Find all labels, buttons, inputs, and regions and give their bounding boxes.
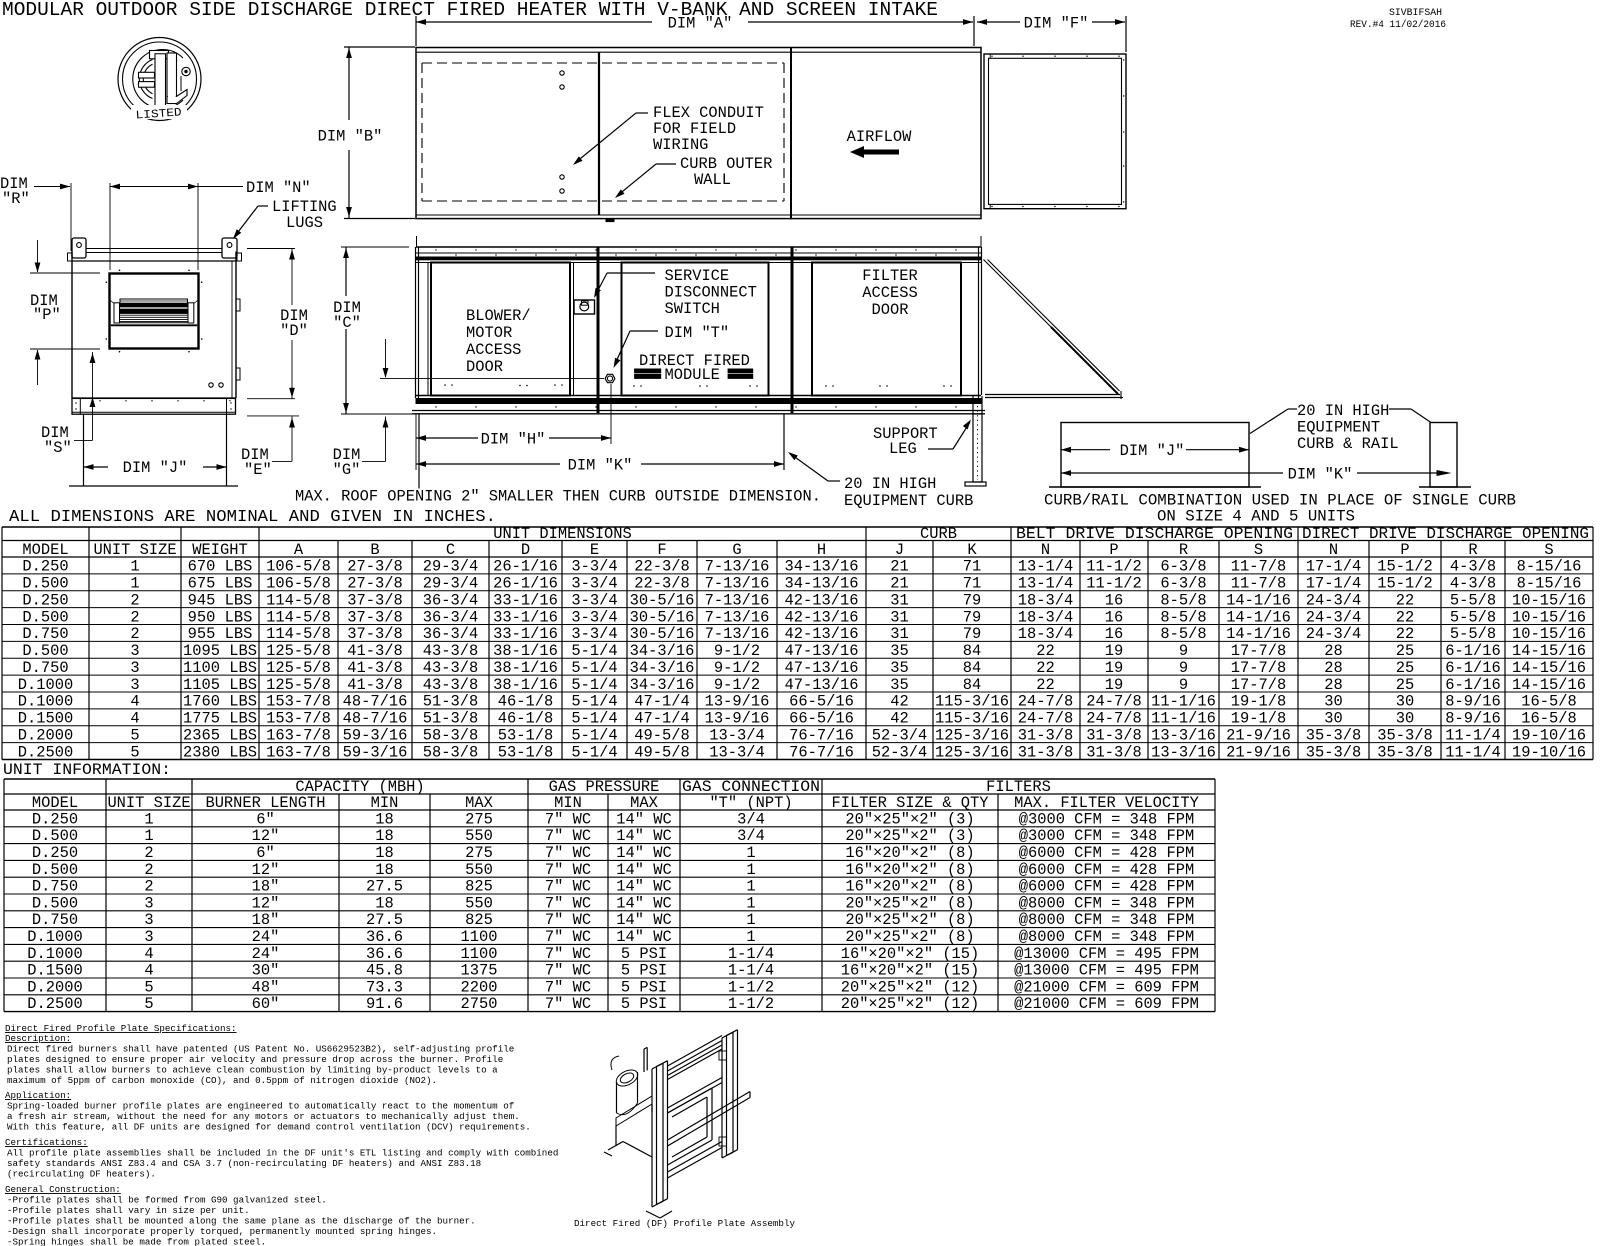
svg-text:48": 48" <box>252 978 280 996</box>
svg-text:D.500: D.500 <box>22 608 68 626</box>
svg-text:@6000 CFM = 428 FPM: @6000 CFM = 428 FPM <box>1019 878 1194 896</box>
svg-text:13-9/16: 13-9/16 <box>705 710 770 728</box>
svg-text:114-5/8: 114-5/8 <box>266 591 331 609</box>
svg-text:D.2000: D.2000 <box>27 978 82 996</box>
svg-text:WALL: WALL <box>694 171 731 189</box>
svg-text:34-3/16: 34-3/16 <box>630 659 695 677</box>
svg-text:H: H <box>817 541 826 559</box>
svg-text:"E": "E" <box>244 461 272 479</box>
svg-text:16: 16 <box>1105 625 1123 643</box>
svg-text:945 LBS: 945 LBS <box>188 591 253 609</box>
svg-text:MAX. FILTER VELOCITY: MAX. FILTER VELOCITY <box>1014 794 1199 812</box>
svg-text:1: 1 <box>130 575 139 593</box>
svg-text:1100 LBS: 1100 LBS <box>183 659 257 677</box>
svg-text:plates shall allow burners to: plates shall allow burners to achieve cl… <box>7 1065 498 1076</box>
svg-text:950 LBS: 950 LBS <box>188 608 253 626</box>
svg-text:WEIGHT: WEIGHT <box>192 541 247 559</box>
svg-text:BURNER LENGTH: BURNER LENGTH <box>205 794 325 812</box>
svg-text:9: 9 <box>1179 642 1188 660</box>
svg-text:7-13/16: 7-13/16 <box>705 591 770 609</box>
svg-text:42-13/16: 42-13/16 <box>785 608 859 626</box>
svg-text:35: 35 <box>890 659 908 677</box>
svg-text:D.250: D.250 <box>32 844 78 862</box>
svg-text:D.500: D.500 <box>32 894 78 912</box>
svg-text:4: 4 <box>130 693 139 711</box>
svg-text:22: 22 <box>1396 608 1414 626</box>
svg-text:12": 12" <box>252 861 280 879</box>
svg-text:20 IN HIGH: 20 IN HIGH <box>1297 402 1389 420</box>
svg-text:60": 60" <box>252 995 280 1013</box>
svg-text:D.250: D.250 <box>22 558 68 576</box>
svg-text:9-1/2: 9-1/2 <box>714 676 760 694</box>
svg-text:DIM "T": DIM "T" <box>665 324 730 342</box>
svg-text:19: 19 <box>1105 642 1123 660</box>
svg-text:37-3/8: 37-3/8 <box>347 608 402 626</box>
svg-text:59-3/16: 59-3/16 <box>343 726 408 744</box>
svg-text:31: 31 <box>890 608 908 626</box>
svg-text:49-5/8: 49-5/8 <box>634 743 689 761</box>
svg-text:13-3/16: 13-3/16 <box>1151 743 1216 761</box>
svg-text:ALL DIMENSIONS ARE NOMINAL AND: ALL DIMENSIONS ARE NOMINAL AND GIVEN IN … <box>9 508 496 527</box>
svg-text:S: S <box>1254 541 1263 559</box>
svg-text:13-3/4: 13-3/4 <box>709 743 764 761</box>
svg-text:24-3/4: 24-3/4 <box>1306 625 1361 643</box>
svg-text:DIM "K": DIM "K" <box>1288 466 1353 484</box>
svg-text:20"×25"×2" (3): 20"×25"×2" (3) <box>845 810 974 828</box>
svg-text:UNIT SIZE: UNIT SIZE <box>107 794 190 812</box>
svg-text:22: 22 <box>1396 591 1414 609</box>
svg-text:22: 22 <box>1036 659 1054 677</box>
svg-text:46-1/8: 46-1/8 <box>498 710 553 728</box>
svg-text:18": 18" <box>252 911 280 929</box>
svg-text:21-9/16: 21-9/16 <box>1226 743 1291 761</box>
svg-text:20"×25"×2" (8): 20"×25"×2" (8) <box>845 911 974 929</box>
svg-text:6-1/16: 6-1/16 <box>1445 642 1500 660</box>
svg-text:DIM "B": DIM "B" <box>318 128 383 146</box>
svg-text:4: 4 <box>130 710 139 728</box>
svg-text:20 IN HIGH: 20 IN HIGH <box>844 475 936 493</box>
svg-text:18: 18 <box>375 894 393 912</box>
svg-text:12": 12" <box>252 894 280 912</box>
svg-text:SIVBIFSAH: SIVBIFSAH <box>1389 7 1442 19</box>
svg-text:5-1/4: 5-1/4 <box>571 642 617 660</box>
svg-text:1105 LBS: 1105 LBS <box>183 676 257 694</box>
svg-text:41-3/8: 41-3/8 <box>347 676 402 694</box>
svg-text:@6000 CFM = 428 FPM: @6000 CFM = 428 FPM <box>1019 844 1194 862</box>
svg-text:27-3/8: 27-3/8 <box>347 558 402 576</box>
svg-text:D.500: D.500 <box>22 642 68 660</box>
svg-text:115-3/16: 115-3/16 <box>935 693 1009 711</box>
svg-text:3/4: 3/4 <box>737 810 765 828</box>
svg-text:@6000 CFM = 428 FPM: @6000 CFM = 428 FPM <box>1019 861 1194 879</box>
svg-text:D.750: D.750 <box>22 625 68 643</box>
svg-text:3/4: 3/4 <box>737 827 765 845</box>
svg-text:31: 31 <box>890 625 908 643</box>
svg-text:13-9/16: 13-9/16 <box>705 693 770 711</box>
svg-text:EQUIPMENT CURB: EQUIPMENT CURB <box>844 492 973 510</box>
svg-text:5 PSI: 5 PSI <box>621 995 667 1013</box>
svg-text:19-10/16: 19-10/16 <box>1512 726 1586 744</box>
svg-text:7-13/16: 7-13/16 <box>705 558 770 576</box>
svg-text:14-15/16: 14-15/16 <box>1512 659 1586 677</box>
svg-text:7" WC: 7" WC <box>545 861 591 879</box>
svg-text:5-1/4: 5-1/4 <box>571 743 617 761</box>
svg-text:D.750: D.750 <box>32 911 78 929</box>
svg-text:3: 3 <box>130 659 139 677</box>
svg-text:20"×25"×2" (3): 20"×25"×2" (3) <box>845 827 974 845</box>
svg-text:18-3/4: 18-3/4 <box>1018 625 1073 643</box>
svg-text:22: 22 <box>1036 642 1054 660</box>
svg-text:35-3/8: 35-3/8 <box>1306 743 1361 761</box>
svg-text:25: 25 <box>1396 659 1414 677</box>
svg-text:31-3/8: 31-3/8 <box>1018 743 1073 761</box>
svg-text:1: 1 <box>746 878 755 896</box>
svg-text:36-3/4: 36-3/4 <box>423 608 478 626</box>
svg-text:47-1/4: 47-1/4 <box>634 693 689 711</box>
svg-text:43-3/8: 43-3/8 <box>423 676 478 694</box>
svg-text:36.6: 36.6 <box>366 928 403 946</box>
svg-text:66-5/16: 66-5/16 <box>789 693 854 711</box>
svg-text:51-3/8: 51-3/8 <box>423 710 478 728</box>
svg-text:14-15/16: 14-15/16 <box>1512 676 1586 694</box>
svg-text:6": 6" <box>256 844 274 862</box>
svg-text:Description:: Description: <box>5 1033 71 1044</box>
svg-text:maximum of 5ppm of carbon mono: maximum of 5ppm of carbon monoxide (CO),… <box>7 1075 437 1086</box>
svg-text:14" WC: 14" WC <box>616 827 671 845</box>
svg-text:66-5/16: 66-5/16 <box>789 710 854 728</box>
svg-text:71: 71 <box>963 558 981 576</box>
svg-text:6-1/16: 6-1/16 <box>1445 676 1500 694</box>
svg-text:R: R <box>1179 541 1188 559</box>
svg-text:a fresh air stream, without th: a fresh air stream, without the need for… <box>7 1111 520 1122</box>
svg-text:53-1/8: 53-1/8 <box>498 743 553 761</box>
svg-text:-Profile plates shall be mount: -Profile plates shall be mounted along t… <box>7 1216 476 1227</box>
svg-text:"R": "R" <box>2 190 30 208</box>
svg-text:17-7/8: 17-7/8 <box>1231 676 1286 694</box>
svg-text:27-3/8: 27-3/8 <box>347 575 402 593</box>
svg-text:"T" (NPT): "T" (NPT) <box>709 794 792 812</box>
svg-text:D.2500: D.2500 <box>27 995 82 1013</box>
svg-text:1100: 1100 <box>461 928 498 946</box>
svg-text:7-13/16: 7-13/16 <box>705 625 770 643</box>
svg-text:1095 LBS: 1095 LBS <box>183 642 257 660</box>
svg-text:33-1/16: 33-1/16 <box>493 625 558 643</box>
svg-text:37-3/8: 37-3/8 <box>347 591 402 609</box>
svg-text:19-1/8: 19-1/8 <box>1231 710 1286 728</box>
svg-text:SWITCH: SWITCH <box>665 300 720 318</box>
svg-text:29-3/4: 29-3/4 <box>423 558 478 576</box>
svg-text:153-7/8: 153-7/8 <box>266 710 331 728</box>
svg-text:DOOR: DOOR <box>872 301 909 319</box>
svg-text:D.1500: D.1500 <box>18 710 73 728</box>
svg-text:6": 6" <box>256 810 274 828</box>
svg-text:31: 31 <box>890 591 908 609</box>
svg-text:MODULAR OUTDOOR SIDE DISCHARGE: MODULAR OUTDOOR SIDE DISCHARGE DIRECT FI… <box>2 0 938 21</box>
svg-text:53-1/8: 53-1/8 <box>498 726 553 744</box>
svg-text:73.3: 73.3 <box>366 978 403 996</box>
svg-text:D.750: D.750 <box>32 878 78 896</box>
svg-text:35: 35 <box>890 642 908 660</box>
svg-text:31-3/8: 31-3/8 <box>1086 726 1141 744</box>
svg-text:12": 12" <box>252 827 280 845</box>
svg-text:Certifications:: Certifications: <box>5 1137 88 1148</box>
svg-text:1: 1 <box>746 928 755 946</box>
svg-text:CURB & RAIL: CURB & RAIL <box>1297 435 1399 453</box>
svg-text:G: G <box>732 541 741 559</box>
svg-text:34-3/16: 34-3/16 <box>630 642 695 660</box>
svg-text:13-1/4: 13-1/4 <box>1018 558 1073 576</box>
svg-text:42: 42 <box>890 693 908 711</box>
svg-text:F: F <box>657 541 666 559</box>
svg-text:D.1500: D.1500 <box>27 962 82 980</box>
svg-text:79: 79 <box>963 591 981 609</box>
svg-text:670 LBS: 670 LBS <box>188 558 253 576</box>
svg-text:3: 3 <box>130 676 139 694</box>
svg-text:7" WC: 7" WC <box>545 911 591 929</box>
svg-text:14" WC: 14" WC <box>616 810 671 828</box>
svg-text:84: 84 <box>963 676 981 694</box>
svg-text:34-13/16: 34-13/16 <box>785 558 859 576</box>
svg-text:79: 79 <box>963 625 981 643</box>
svg-text:ON SIZE 4 AND 5 UNITS: ON SIZE 4 AND 5 UNITS <box>1157 508 1355 526</box>
svg-text:2: 2 <box>130 608 139 626</box>
svg-text:C: C <box>446 541 455 559</box>
svg-text:84: 84 <box>963 659 981 677</box>
svg-text:13-3/16: 13-3/16 <box>1151 726 1216 744</box>
svg-text:8-15/16: 8-15/16 <box>1517 558 1582 576</box>
svg-text:18: 18 <box>375 827 393 845</box>
svg-text:1760 LBS: 1760 LBS <box>183 693 257 711</box>
svg-text:EQUIPMENT: EQUIPMENT <box>1297 419 1380 437</box>
svg-text:24-3/4: 24-3/4 <box>1306 608 1361 626</box>
svg-text:5-1/4: 5-1/4 <box>571 676 617 694</box>
svg-text:"P": "P" <box>33 306 61 324</box>
svg-text:35-3/8: 35-3/8 <box>1377 743 1432 761</box>
svg-text:7-13/16: 7-13/16 <box>705 575 770 593</box>
svg-text:18: 18 <box>375 810 393 828</box>
svg-text:125-3/16: 125-3/16 <box>935 726 1009 744</box>
svg-text:42-13/16: 42-13/16 <box>785 625 859 643</box>
svg-text:3-3/4: 3-3/4 <box>571 608 617 626</box>
svg-text:1775 LBS: 1775 LBS <box>183 710 257 728</box>
svg-text:19-1/8: 19-1/8 <box>1231 693 1286 711</box>
svg-text:11-1/16: 11-1/16 <box>1151 710 1216 728</box>
svg-text:K: K <box>967 541 977 559</box>
svg-text:8-9/16: 8-9/16 <box>1445 693 1500 711</box>
svg-text:3: 3 <box>144 928 153 946</box>
svg-text:38-1/16: 38-1/16 <box>493 642 558 660</box>
svg-text:163-7/8: 163-7/8 <box>266 726 331 744</box>
svg-text:11-1/4: 11-1/4 <box>1445 743 1500 761</box>
svg-text:38-1/16: 38-1/16 <box>493 659 558 677</box>
svg-text:6-3/8: 6-3/8 <box>1160 575 1206 593</box>
svg-text:@21000 CFM = 609 FPM: @21000 CFM = 609 FPM <box>1014 978 1199 996</box>
svg-text:30-5/16: 30-5/16 <box>630 591 695 609</box>
svg-text:D.500: D.500 <box>32 827 78 845</box>
svg-text:11-1/4: 11-1/4 <box>1445 726 1500 744</box>
svg-text:17-1/4: 17-1/4 <box>1306 575 1361 593</box>
svg-text:Direct fired burners shall hav: Direct fired burners shall have patented… <box>7 1044 514 1055</box>
svg-text:6-1/16: 6-1/16 <box>1445 659 1500 677</box>
svg-text:2: 2 <box>130 591 139 609</box>
svg-text:9-1/2: 9-1/2 <box>714 642 760 660</box>
svg-text:14-1/16: 14-1/16 <box>1226 625 1291 643</box>
svg-text:17-1/4: 17-1/4 <box>1306 558 1361 576</box>
svg-text:550: 550 <box>465 894 493 912</box>
svg-text:MIN: MIN <box>554 794 582 812</box>
svg-text:16: 16 <box>1105 591 1123 609</box>
svg-text:153-7/8: 153-7/8 <box>266 693 331 711</box>
svg-text:20"×25"×2" (12): 20"×25"×2" (12) <box>841 978 980 996</box>
svg-text:5: 5 <box>130 726 139 744</box>
svg-text:14" WC: 14" WC <box>616 861 671 879</box>
svg-text:11-1/2: 11-1/2 <box>1086 575 1141 593</box>
svg-text:1100: 1100 <box>461 945 498 963</box>
svg-text:5-1/4: 5-1/4 <box>571 726 617 744</box>
svg-text:1-1/2: 1-1/2 <box>728 995 774 1013</box>
svg-text:15-1/2: 15-1/2 <box>1377 558 1432 576</box>
svg-text:7" WC: 7" WC <box>545 928 591 946</box>
svg-text:825: 825 <box>465 878 493 896</box>
svg-text:42-13/16: 42-13/16 <box>785 591 859 609</box>
svg-text:28: 28 <box>1324 642 1342 660</box>
svg-text:D.2500: D.2500 <box>18 743 73 761</box>
svg-text:14-1/16: 14-1/16 <box>1226 591 1291 609</box>
svg-text:UNIT SIZE: UNIT SIZE <box>93 541 176 559</box>
svg-text:34-3/16: 34-3/16 <box>630 676 695 694</box>
svg-text:5 PSI: 5 PSI <box>621 945 667 963</box>
svg-text:36.6: 36.6 <box>366 945 403 963</box>
svg-text:15-1/2: 15-1/2 <box>1377 575 1432 593</box>
svg-text:675 LBS: 675 LBS <box>188 575 253 593</box>
svg-text:26-1/16: 26-1/16 <box>493 558 558 576</box>
svg-text:7" WC: 7" WC <box>545 810 591 828</box>
svg-text:37-3/8: 37-3/8 <box>347 625 402 643</box>
svg-text:825: 825 <box>465 911 493 929</box>
svg-text:22: 22 <box>1396 625 1414 643</box>
svg-text:5-5/8: 5-5/8 <box>1450 608 1496 626</box>
svg-text:59-3/16: 59-3/16 <box>343 743 408 761</box>
svg-text:17-7/8: 17-7/8 <box>1231 642 1286 660</box>
svg-text:10-15/16: 10-15/16 <box>1512 591 1586 609</box>
svg-text:7" WC: 7" WC <box>545 844 591 862</box>
svg-text:4: 4 <box>144 945 153 963</box>
svg-text:41-3/8: 41-3/8 <box>347 659 402 677</box>
svg-text:14" WC: 14" WC <box>616 844 671 862</box>
svg-text:114-5/8: 114-5/8 <box>266 625 331 643</box>
svg-text:DIM "F": DIM "F" <box>1024 15 1089 33</box>
svg-text:D.2000: D.2000 <box>18 726 73 744</box>
svg-text:D.250: D.250 <box>22 591 68 609</box>
svg-text:3-3/4: 3-3/4 <box>571 558 617 576</box>
svg-text:58-3/8: 58-3/8 <box>423 726 478 744</box>
svg-text:D.1000: D.1000 <box>27 928 82 946</box>
svg-text:58-3/8: 58-3/8 <box>423 743 478 761</box>
svg-text:47-13/16: 47-13/16 <box>785 676 859 694</box>
svg-text:125-5/8: 125-5/8 <box>266 642 331 660</box>
svg-text:@3000 CFM = 348 FPM: @3000 CFM = 348 FPM <box>1019 827 1194 845</box>
svg-text:1: 1 <box>746 911 755 929</box>
svg-text:MIN: MIN <box>371 794 399 812</box>
svg-text:35: 35 <box>890 676 908 694</box>
svg-text:5: 5 <box>130 743 139 761</box>
svg-text:2750: 2750 <box>461 995 498 1013</box>
svg-text:25: 25 <box>1396 642 1414 660</box>
svg-text:125-3/16: 125-3/16 <box>935 743 1009 761</box>
svg-text:14-15/16: 14-15/16 <box>1512 642 1586 660</box>
svg-text:47-13/16: 47-13/16 <box>785 659 859 677</box>
svg-text:24": 24" <box>252 928 280 946</box>
svg-text:D: D <box>521 541 530 559</box>
svg-text:3: 3 <box>130 642 139 660</box>
svg-text:24": 24" <box>252 945 280 963</box>
svg-text:6-3/8: 6-3/8 <box>1160 558 1206 576</box>
svg-text:16: 16 <box>1105 608 1123 626</box>
svg-text:30: 30 <box>1324 693 1342 711</box>
svg-text:DOOR: DOOR <box>466 358 503 376</box>
svg-text:7" WC: 7" WC <box>545 945 591 963</box>
svg-text:20"×25"×2" (12): 20"×25"×2" (12) <box>841 995 980 1013</box>
svg-text:7" WC: 7" WC <box>545 894 591 912</box>
svg-text:P: P <box>1400 541 1409 559</box>
svg-text:8-5/8: 8-5/8 <box>1160 625 1206 643</box>
svg-text:BELT DRIVE DISCHARGE OPENING: BELT DRIVE DISCHARGE OPENING <box>1016 525 1293 543</box>
svg-text:With this feature, all DF unit: With this feature, all DF units are desi… <box>7 1122 531 1133</box>
svg-text:19: 19 <box>1105 676 1123 694</box>
svg-text:25: 25 <box>1396 676 1414 694</box>
svg-text:5: 5 <box>144 978 153 996</box>
svg-text:5-5/8: 5-5/8 <box>1450 625 1496 643</box>
svg-text:1: 1 <box>144 810 153 828</box>
svg-text:FILTER: FILTER <box>862 267 917 285</box>
svg-text:8-5/8: 8-5/8 <box>1160 608 1206 626</box>
svg-text:DIM "K": DIM "K" <box>568 457 633 475</box>
svg-text:3: 3 <box>144 911 153 929</box>
svg-text:Spring-loaded burner profile p: Spring-loaded burner profile plates are … <box>7 1101 514 1112</box>
svg-text:27.5: 27.5 <box>366 878 403 896</box>
svg-text:11-7/8: 11-7/8 <box>1231 575 1286 593</box>
svg-text:955 LBS: 955 LBS <box>188 625 253 643</box>
svg-text:31-3/8: 31-3/8 <box>1018 726 1073 744</box>
svg-text:1: 1 <box>746 861 755 879</box>
svg-text:@8000 CFM = 348 FPM: @8000 CFM = 348 FPM <box>1019 911 1194 929</box>
svg-text:16-5/8: 16-5/8 <box>1521 693 1576 711</box>
svg-text:B: B <box>370 541 379 559</box>
svg-text:8-5/8: 8-5/8 <box>1160 591 1206 609</box>
svg-text:MODULE: MODULE <box>665 366 720 384</box>
svg-text:-Profile plates shall vary in: -Profile plates shall vary in size per u… <box>7 1205 250 1216</box>
svg-text:14" WC: 14" WC <box>616 894 671 912</box>
svg-text:"S": "S" <box>44 439 72 457</box>
svg-text:P: P <box>1109 541 1118 559</box>
svg-text:27.5: 27.5 <box>366 911 403 929</box>
svg-text:J: J <box>895 541 904 559</box>
svg-text:30": 30" <box>252 962 280 980</box>
svg-text:13-1/4: 13-1/4 <box>1018 575 1073 593</box>
svg-text:9: 9 <box>1179 659 1188 677</box>
svg-text:"C": "C" <box>333 314 361 332</box>
svg-text:115-3/16: 115-3/16 <box>935 710 1009 728</box>
svg-text:D.1000: D.1000 <box>18 676 73 694</box>
svg-text:2380 LBS: 2380 LBS <box>183 743 257 761</box>
svg-text:38-1/16: 38-1/16 <box>493 676 558 694</box>
svg-text:21-9/16: 21-9/16 <box>1226 726 1291 744</box>
svg-text:3-3/4: 3-3/4 <box>571 575 617 593</box>
svg-text:10-15/16: 10-15/16 <box>1512 625 1586 643</box>
svg-text:7" WC: 7" WC <box>545 978 591 996</box>
svg-text:24-7/8: 24-7/8 <box>1018 710 1073 728</box>
svg-text:18-3/4: 18-3/4 <box>1018 591 1073 609</box>
